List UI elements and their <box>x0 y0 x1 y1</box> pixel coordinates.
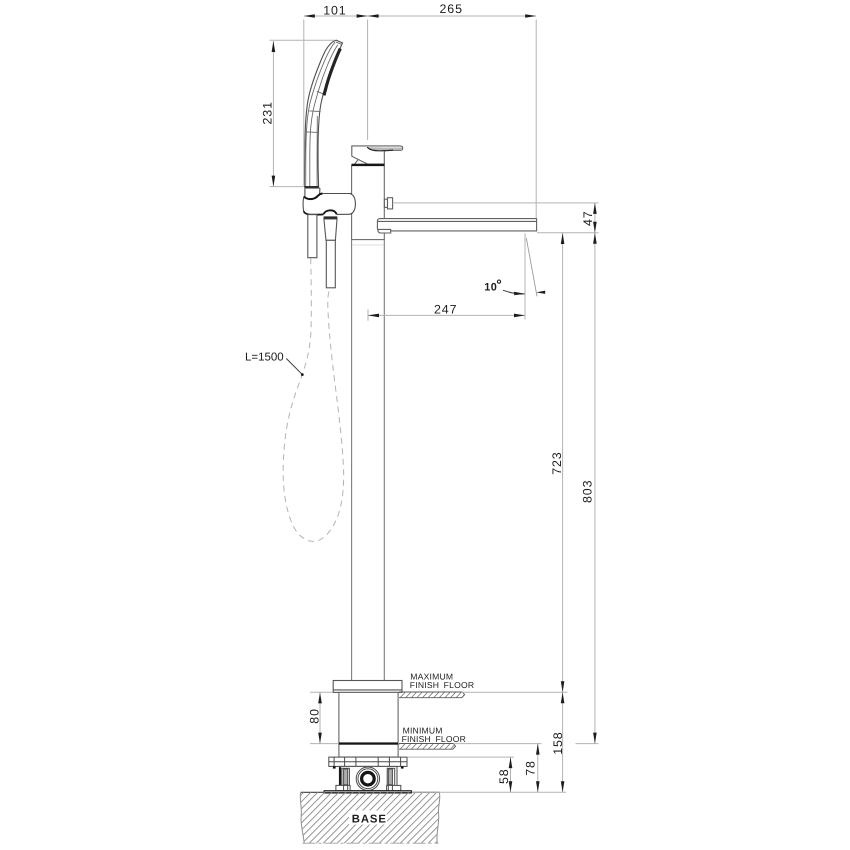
svg-text:BASE: BASE <box>352 814 387 826</box>
svg-text:265: 265 <box>440 2 463 16</box>
svg-text:L=1500: L=1500 <box>245 351 284 363</box>
svg-text:58: 58 <box>497 768 511 784</box>
svg-text:10: 10 <box>484 282 497 294</box>
svg-text:247: 247 <box>434 303 457 317</box>
svg-text:803: 803 <box>580 480 594 503</box>
svg-text:47: 47 <box>581 210 595 226</box>
svg-text:101: 101 <box>323 4 346 18</box>
svg-text:231: 231 <box>261 101 275 124</box>
svg-text:723: 723 <box>550 451 564 474</box>
svg-text:FINISH FLOOR: FINISH FLOOR <box>402 734 466 744</box>
svg-text:80: 80 <box>308 708 322 724</box>
svg-text:78: 78 <box>523 760 537 776</box>
svg-text:FINISH FLOOR: FINISH FLOOR <box>410 680 474 690</box>
svg-text:158: 158 <box>551 731 565 754</box>
